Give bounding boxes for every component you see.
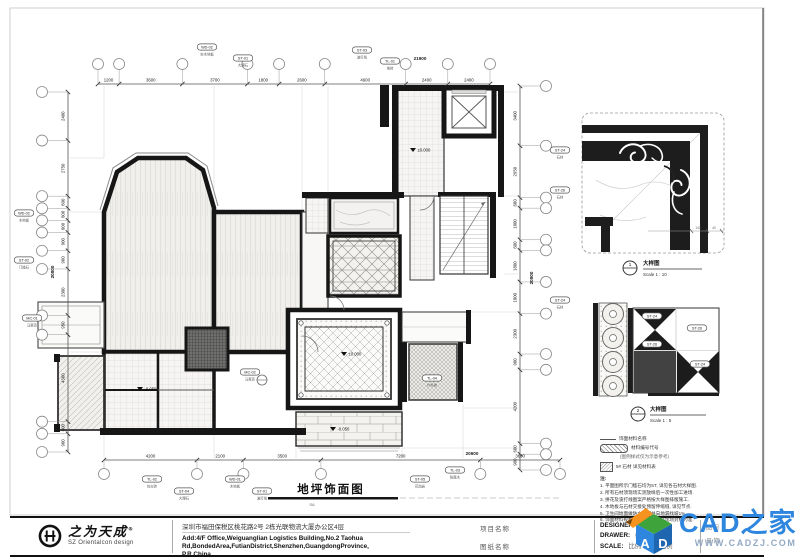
room-mosaic-dark bbox=[186, 328, 228, 370]
svg-text:马赛克: 马赛克 bbox=[245, 376, 256, 381]
grid-bubble bbox=[442, 59, 453, 70]
material-tag: ST-05花岗岩 bbox=[410, 476, 430, 489]
dim-label: 2300 bbox=[513, 328, 518, 338]
grid-bubble bbox=[541, 349, 552, 360]
company-monogram-icon bbox=[38, 524, 62, 548]
grid-bubble bbox=[37, 87, 48, 98]
svg-text:±0.000: ±0.000 bbox=[349, 352, 362, 357]
legend-leader-line bbox=[600, 439, 616, 440]
svg-text:ST-01: ST-01 bbox=[238, 57, 248, 61]
svg-text:马赛克: 马赛克 bbox=[27, 322, 38, 327]
dim-label: 600 bbox=[61, 222, 66, 230]
project-name-label: 项目名称 bbox=[480, 523, 510, 533]
svg-text:ST-26: ST-26 bbox=[555, 189, 565, 193]
dim-label: 3700 bbox=[210, 78, 220, 83]
dim-label: 2600 bbox=[297, 78, 307, 83]
detail2-caption: 大样图 bbox=[650, 405, 667, 413]
dim-label: 2300 bbox=[61, 287, 66, 297]
detail2-scale: Scale 1 : 5 bbox=[650, 418, 672, 423]
address-en-line2: Rd,BondedArea,FutianDistrict,Shenzhen,Gu… bbox=[182, 543, 410, 551]
note-item: 2. 所有石材须现场实测放样后一次性加工进场. bbox=[600, 490, 755, 497]
svg-text:WD-01: WD-01 bbox=[229, 478, 241, 482]
grid-bubble bbox=[37, 447, 48, 458]
dim-label: 3500 bbox=[277, 454, 287, 459]
level-marker: ±0.000 bbox=[410, 148, 431, 153]
svg-text:±0.000: ±0.000 bbox=[418, 148, 431, 153]
dim-label: 900 bbox=[513, 358, 518, 366]
dim-label: 4600 bbox=[360, 78, 370, 83]
grid-bubble bbox=[475, 469, 486, 480]
material-tag: TL-01地砖 bbox=[380, 58, 400, 71]
dim-chain-bottom: 4200210035007200360020600 bbox=[99, 451, 566, 480]
dim-label: 600 bbox=[61, 210, 66, 218]
svg-text:ST-01: ST-01 bbox=[257, 490, 267, 494]
company-address: 深圳市福田保税区桃花路2号 2栋光联物流大厦办公区4层 Add:4/F Offi… bbox=[182, 521, 410, 559]
dim-total: 20600 bbox=[466, 451, 479, 456]
svg-text:木地板: 木地板 bbox=[19, 217, 30, 222]
svg-text:ST-26: ST-26 bbox=[647, 343, 657, 347]
dim-label: 900 bbox=[61, 237, 66, 245]
grid-bubble bbox=[541, 465, 552, 476]
grid-bubble bbox=[37, 191, 48, 202]
svg-text:D: D bbox=[658, 536, 667, 551]
legend-row-name: 饰面材料名称 bbox=[600, 436, 755, 442]
svg-text:花岗岩: 花岗岩 bbox=[415, 483, 426, 488]
level-marker: -0.050 bbox=[330, 427, 350, 432]
material-tag: ST-26石材 bbox=[550, 187, 570, 200]
legend-row-code: 材料编号代号 bbox=[600, 444, 755, 453]
svg-text:ST-04: ST-04 bbox=[179, 490, 189, 494]
material-tag: ST-26 bbox=[687, 325, 707, 331]
material-tag: ST-03波打线 bbox=[352, 47, 372, 60]
address-en-line1: Add:4/F Office,Weiguanglian Logistics Bu… bbox=[182, 535, 410, 543]
grid-bubble bbox=[541, 192, 552, 203]
material-tag: ST-26 bbox=[642, 341, 662, 347]
grid-bubble bbox=[541, 81, 552, 92]
detail-corner-border: 140 40 1 大样图 Scale 1 : 10 bbox=[582, 113, 724, 277]
grid-bubble bbox=[114, 59, 125, 70]
grid-bubble bbox=[541, 449, 552, 460]
svg-text:大理石: 大理石 bbox=[238, 62, 249, 67]
grid-bubble bbox=[177, 59, 188, 70]
room-lobby-marble bbox=[330, 198, 398, 233]
svg-text:-0.050: -0.050 bbox=[338, 427, 351, 432]
grid-bubble bbox=[319, 59, 330, 70]
detail1-scale: Scale 1 : 10 bbox=[643, 272, 667, 277]
svg-text:波打线: 波打线 bbox=[357, 54, 368, 59]
dim-label: 3600 bbox=[146, 78, 156, 83]
material-tag: ST-24 bbox=[690, 361, 710, 367]
cadzj-url[interactable]: WWW.CADZJ.COM bbox=[679, 538, 797, 548]
svg-text:ST-24: ST-24 bbox=[695, 363, 705, 367]
dim-label: 600 bbox=[513, 445, 518, 453]
material-tag: WD-02木地板 bbox=[14, 210, 34, 223]
patio-hatched bbox=[409, 344, 457, 400]
grid-bubble bbox=[315, 469, 326, 480]
dim-total: 20800 bbox=[529, 271, 534, 284]
registered-mark: ® bbox=[128, 527, 135, 533]
svg-text:防腐木: 防腐木 bbox=[450, 474, 461, 479]
svg-text:TL-04: TL-04 bbox=[427, 377, 437, 381]
company-brand-sub: SZ Orientalcon design bbox=[68, 540, 135, 546]
grid-bubble bbox=[37, 203, 48, 214]
material-tag: ST-04大理石 bbox=[174, 488, 194, 501]
dim-label: 900 bbox=[513, 458, 518, 466]
svg-text:MC-02: MC-02 bbox=[244, 371, 255, 375]
dim-chain-right: 3400295060018006001800180023009004200600… bbox=[513, 81, 552, 476]
hall-strip bbox=[410, 196, 434, 280]
svg-text:ST-24: ST-24 bbox=[555, 299, 565, 303]
grid-bubble bbox=[485, 59, 496, 70]
dim-total: 21900 bbox=[414, 56, 427, 61]
svg-text:石材: 石材 bbox=[557, 154, 564, 159]
dim-label: 2400 bbox=[61, 111, 66, 121]
grid-bubble bbox=[37, 215, 48, 226]
material-tag: ST-24石材 bbox=[550, 147, 570, 160]
level-marker: ±0.000 bbox=[341, 352, 362, 357]
svg-text:ST-02: ST-02 bbox=[19, 259, 29, 263]
grid-bubble bbox=[555, 469, 566, 480]
corridor-top bbox=[398, 90, 444, 196]
svg-text:门槛石: 门槛石 bbox=[19, 264, 30, 269]
grid-bubble bbox=[541, 276, 552, 287]
dim-total: 20800 bbox=[50, 265, 55, 278]
material-tag: TL-02仿古砖 bbox=[142, 476, 162, 489]
svg-text:WD-02: WD-02 bbox=[18, 212, 30, 216]
grid-bubble bbox=[541, 364, 552, 375]
material-tag: ST-24 bbox=[642, 313, 662, 319]
dim-label: 1800 bbox=[258, 78, 268, 83]
svg-text:ST-26: ST-26 bbox=[692, 327, 702, 331]
grid-bubble bbox=[37, 245, 48, 256]
svg-text:大理石: 大理石 bbox=[179, 495, 190, 500]
svg-text:ST-03: ST-03 bbox=[357, 49, 367, 53]
svg-text:ST-24: ST-24 bbox=[647, 315, 657, 319]
svg-text:40: 40 bbox=[712, 226, 716, 230]
material-tag: WD-01木地板 bbox=[225, 476, 245, 489]
grid-bubble bbox=[99, 469, 110, 480]
legend-label-4: 5# 石材 详见材料表 bbox=[616, 464, 656, 470]
dim-label: 2950 bbox=[513, 166, 518, 176]
grid-bubble bbox=[37, 416, 48, 427]
notes-heading: 注: bbox=[600, 475, 755, 482]
grid-bubble bbox=[37, 329, 48, 340]
svg-text:户外砖: 户外砖 bbox=[427, 382, 438, 387]
grid-bubble bbox=[541, 438, 552, 449]
floor-plan bbox=[38, 85, 504, 451]
grid-bubble bbox=[541, 203, 552, 214]
svg-text:WD-02: WD-02 bbox=[201, 46, 213, 50]
legend-label-2: 材料编号代号 bbox=[631, 445, 659, 451]
grid-bubble bbox=[37, 227, 48, 238]
svg-text:140: 140 bbox=[695, 226, 701, 230]
legend-label-1: 饰面材料名称 bbox=[619, 436, 647, 442]
address-cn: 深圳市福田保税区桃花路2号 2栋光联物流大厦办公区4层 bbox=[182, 521, 410, 533]
legend-row-swatch: 5# 石材 详见材料表 bbox=[600, 462, 755, 472]
material-tag: ST-24石材 bbox=[550, 297, 570, 310]
room-master-bedroom bbox=[104, 158, 214, 352]
svg-text:地砖: 地砖 bbox=[387, 65, 394, 70]
dim-label: 2750 bbox=[61, 163, 66, 173]
grid-bubble bbox=[37, 135, 48, 146]
titleblock-divider bbox=[594, 520, 595, 553]
note-item: 1. 平面图所示门槛石均为ST, 详见各石材大样图. bbox=[600, 483, 755, 490]
legend-note: (图例样式仅为示意参考) bbox=[620, 454, 755, 460]
dim-label: 950 bbox=[61, 321, 66, 329]
svg-text:-0.050: -0.050 bbox=[145, 387, 158, 392]
titleblock-divider bbox=[172, 520, 173, 553]
svg-text:ST-24: ST-24 bbox=[555, 149, 565, 153]
svg-text:实木地板: 实木地板 bbox=[200, 51, 214, 56]
cadzj-brand-text: CAD之家 bbox=[679, 510, 797, 537]
dim-label: 4200 bbox=[513, 401, 518, 411]
grid-bubble bbox=[93, 59, 104, 70]
address-en: Add:4/F Office,Weiguanglian Logistics Bu… bbox=[182, 535, 410, 560]
room-foyer bbox=[328, 236, 400, 296]
svg-text:石材: 石材 bbox=[557, 304, 564, 309]
material-tag: TL-03防腐木 bbox=[445, 467, 465, 480]
level-marker: -0.050 bbox=[137, 387, 157, 392]
grid-bubble bbox=[37, 263, 48, 274]
drawing-name-label: 图纸名称 bbox=[480, 541, 510, 551]
dim-chain-top: 1200360037001800260046002400240021900 bbox=[93, 56, 496, 86]
dim-label: 4300 bbox=[61, 373, 66, 383]
grid-bubble bbox=[191, 469, 202, 480]
company-brand: 之为天成® bbox=[68, 526, 135, 539]
material-tag-sample bbox=[600, 444, 628, 453]
svg-text:TL-01: TL-01 bbox=[385, 60, 395, 64]
dim-label: 600 bbox=[513, 199, 518, 207]
note-item: 3. 拼花及波打线图案严格按大样图排版施工. bbox=[600, 497, 755, 504]
company-logo: 之为天成® SZ Orientalcon design bbox=[38, 524, 135, 548]
room-living bbox=[288, 310, 400, 408]
grid-bubble bbox=[37, 428, 48, 439]
titleblock-fields: 项目名称 图纸名称 bbox=[480, 523, 510, 559]
title-code: SA bbox=[309, 502, 315, 507]
material-tag: WD-02实木地板 bbox=[197, 44, 217, 57]
svg-text:波打线: 波打线 bbox=[257, 495, 268, 500]
grid-bubble bbox=[541, 234, 552, 245]
dim-label: 3400 bbox=[513, 110, 518, 120]
cad-sheet-page: 140 40 1 大样图 Scale 1 : 10 bbox=[0, 0, 800, 560]
grid-bubble bbox=[541, 140, 552, 151]
cadzj-cube-icon: A D bbox=[626, 506, 678, 558]
dim-label: 900 bbox=[61, 439, 66, 447]
dim-label: 600 bbox=[61, 198, 66, 206]
terrace-left bbox=[58, 356, 104, 430]
dim-label: 1800 bbox=[513, 292, 518, 302]
address-en-line3: P.R.China bbox=[182, 551, 410, 559]
dim-label: 1800 bbox=[513, 219, 518, 229]
page-title: 地坪饰面图 bbox=[297, 482, 365, 496]
svg-text:木地板: 木地板 bbox=[230, 483, 241, 488]
svg-text:TL-02: TL-02 bbox=[147, 478, 157, 482]
dim-label: 600 bbox=[61, 424, 66, 432]
dim-label: 4200 bbox=[146, 454, 156, 459]
material-tag: ST-02门槛石 bbox=[14, 257, 34, 270]
grid-bubble bbox=[274, 59, 285, 70]
svg-text:ST-05: ST-05 bbox=[415, 478, 425, 482]
material-swatch-sample bbox=[600, 462, 613, 472]
dim-label: 7200 bbox=[396, 454, 406, 459]
grid-bubble bbox=[541, 245, 552, 256]
svg-text:MC-01: MC-01 bbox=[26, 317, 37, 321]
dim-label: 2100 bbox=[215, 454, 225, 459]
dim-label: 1800 bbox=[513, 261, 518, 271]
detail1-caption: 大样图 bbox=[643, 259, 660, 267]
dim-label: 2400 bbox=[422, 78, 432, 83]
dim-label: 1200 bbox=[104, 78, 114, 83]
grid-bubble bbox=[400, 59, 411, 70]
cadzj-watermark: A D CAD之家 WWW.CADZJ.COM bbox=[626, 506, 800, 560]
dim-label: 2400 bbox=[464, 78, 474, 83]
svg-text:仿古砖: 仿古砖 bbox=[147, 483, 158, 488]
dim-label: 600 bbox=[513, 241, 518, 249]
svg-text:TL-03: TL-03 bbox=[450, 469, 460, 473]
svg-text:石材: 石材 bbox=[557, 194, 564, 199]
svg-text:A: A bbox=[640, 536, 650, 551]
dim-label: 900 bbox=[61, 256, 66, 264]
staircase bbox=[440, 196, 488, 274]
grid-bubble bbox=[541, 308, 552, 319]
